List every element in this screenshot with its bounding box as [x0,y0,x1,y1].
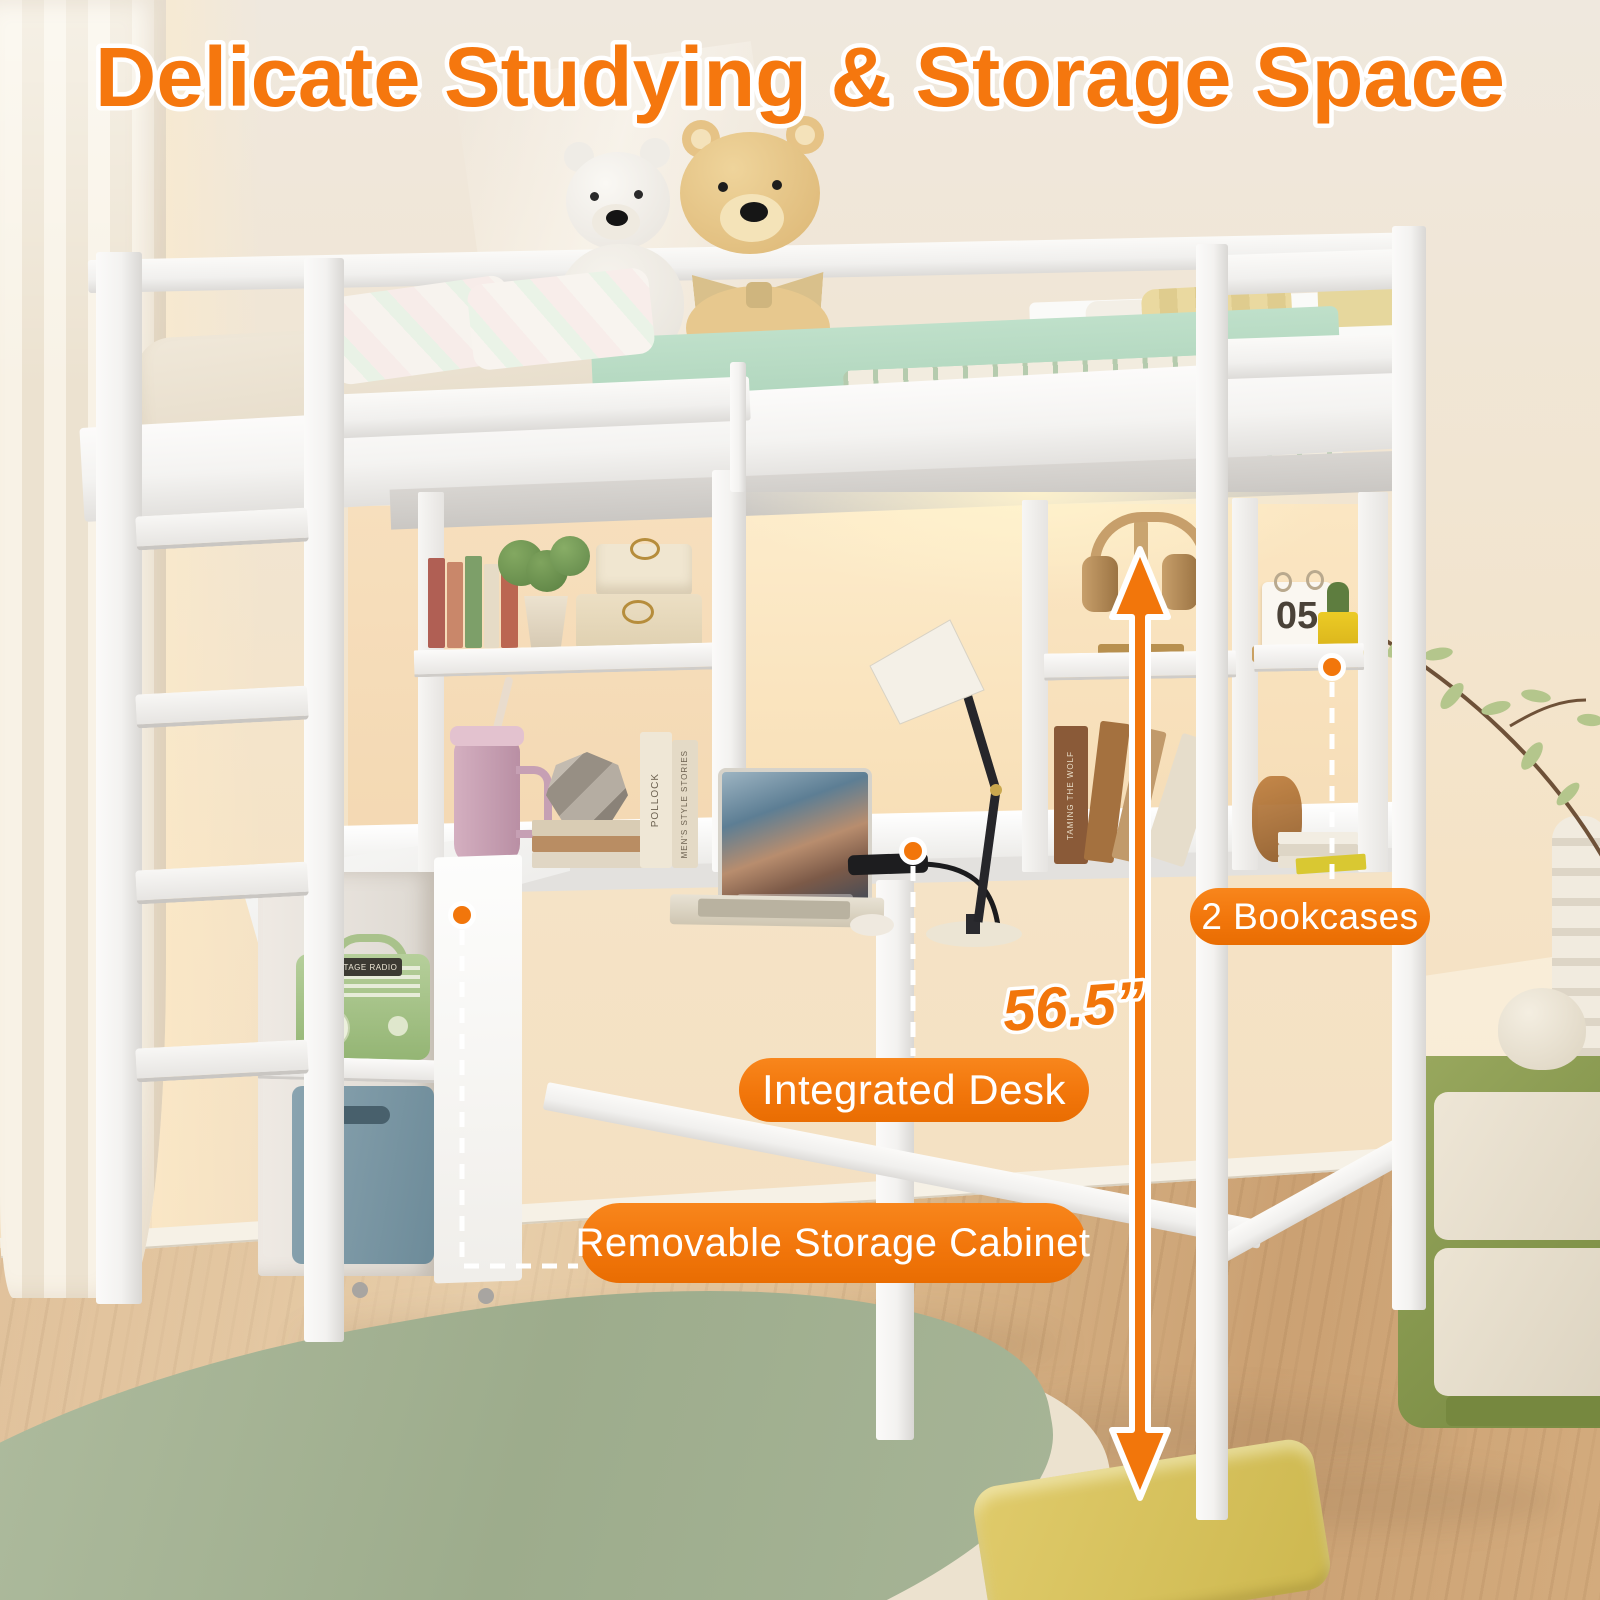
calendar-ring [1274,572,1292,592]
tumbler-lid [450,726,524,746]
bed-post-left-back [96,252,142,1304]
page-title: Delicate Studying & Storage Space [95,30,1505,124]
bear-eye [718,182,728,192]
plant-pot [520,596,572,650]
book [465,556,482,648]
teddy-bear-tan [672,110,844,362]
bin-handle-slot [336,1106,390,1124]
callout-desk-label: Integrated Desk [762,1066,1066,1114]
bear-eye [634,190,643,199]
gift-box-clasp [622,600,654,624]
tumbler [454,738,520,866]
book-stack [532,820,644,868]
cabinet-side-panel [434,854,522,1283]
plant-foliage [550,536,590,576]
book [1278,832,1358,844]
callout-cabinet: Removable Storage Cabinet [580,1203,1086,1283]
bookcase-side-panel [1358,492,1388,872]
headphones [1076,512,1216,662]
standing-book: MEN'S STYLE STORIES [672,740,698,868]
hutch-side-panel [418,492,444,872]
headphone-cup [1162,554,1198,610]
headphone-cup [1082,556,1118,612]
book [447,562,463,648]
height-value: 56.5” [1001,969,1147,1044]
laptop-keyboard [698,899,850,920]
bear-eye [772,180,782,190]
bear-nose [740,202,768,222]
book-spine-label: POLLOCK [651,773,661,827]
standing-book: POLLOCK [640,732,672,868]
calendar-ring [1306,570,1324,590]
product-scene: POLLOCK MEN'S STYLE STORIES 05 [0,0,1600,1600]
laptop-screen [718,768,872,910]
desk-lamp [862,604,1032,954]
bear-eye [590,192,599,201]
ladder-rail [304,258,344,1342]
leaning-book: TAMING THE WOLF [1054,726,1088,864]
radio-knob [388,1016,408,1036]
lamp-joint [990,784,1002,796]
bear-nose [606,210,628,226]
bed-post-right-back [1392,226,1426,1310]
book [484,564,499,648]
book [532,836,644,852]
title-banner: Delicate Studying & Storage Space [0,8,1600,138]
callout-cabinet-label: Removable Storage Cabinet [575,1221,1090,1266]
height-measurement: 56.5” [950,960,1200,1060]
guardrail-end [730,362,746,492]
lamp-arm [978,790,996,922]
calendar-day: 05 [1276,595,1318,638]
callout-bookcases-label: 2 Bookcases [1201,896,1418,938]
bookcase-shelf [1254,643,1364,672]
lamp-arm [964,684,996,790]
cabinet-caster [352,1282,368,1298]
nightstand-plinth [1446,1396,1600,1426]
ceramic-vase [1498,988,1586,1070]
book [532,820,644,836]
book-spine-label: TAMING THE WOLF [1067,751,1075,840]
bear-bow-knot [746,282,772,308]
gift-box-clasp [630,538,660,560]
cabinet-caster [478,1288,494,1304]
book-spine-label: MEN'S STYLE STORIES [681,750,689,858]
nightstand-drawer [1434,1248,1600,1396]
callout-bookcases: 2 Bookcases [1190,888,1430,945]
book [532,852,644,868]
bed-post-right-front [1196,244,1228,1520]
callout-desk: Integrated Desk [739,1058,1089,1122]
nightstand-drawer [1434,1092,1600,1240]
book [428,558,445,648]
branch-twig [1510,700,1586,726]
